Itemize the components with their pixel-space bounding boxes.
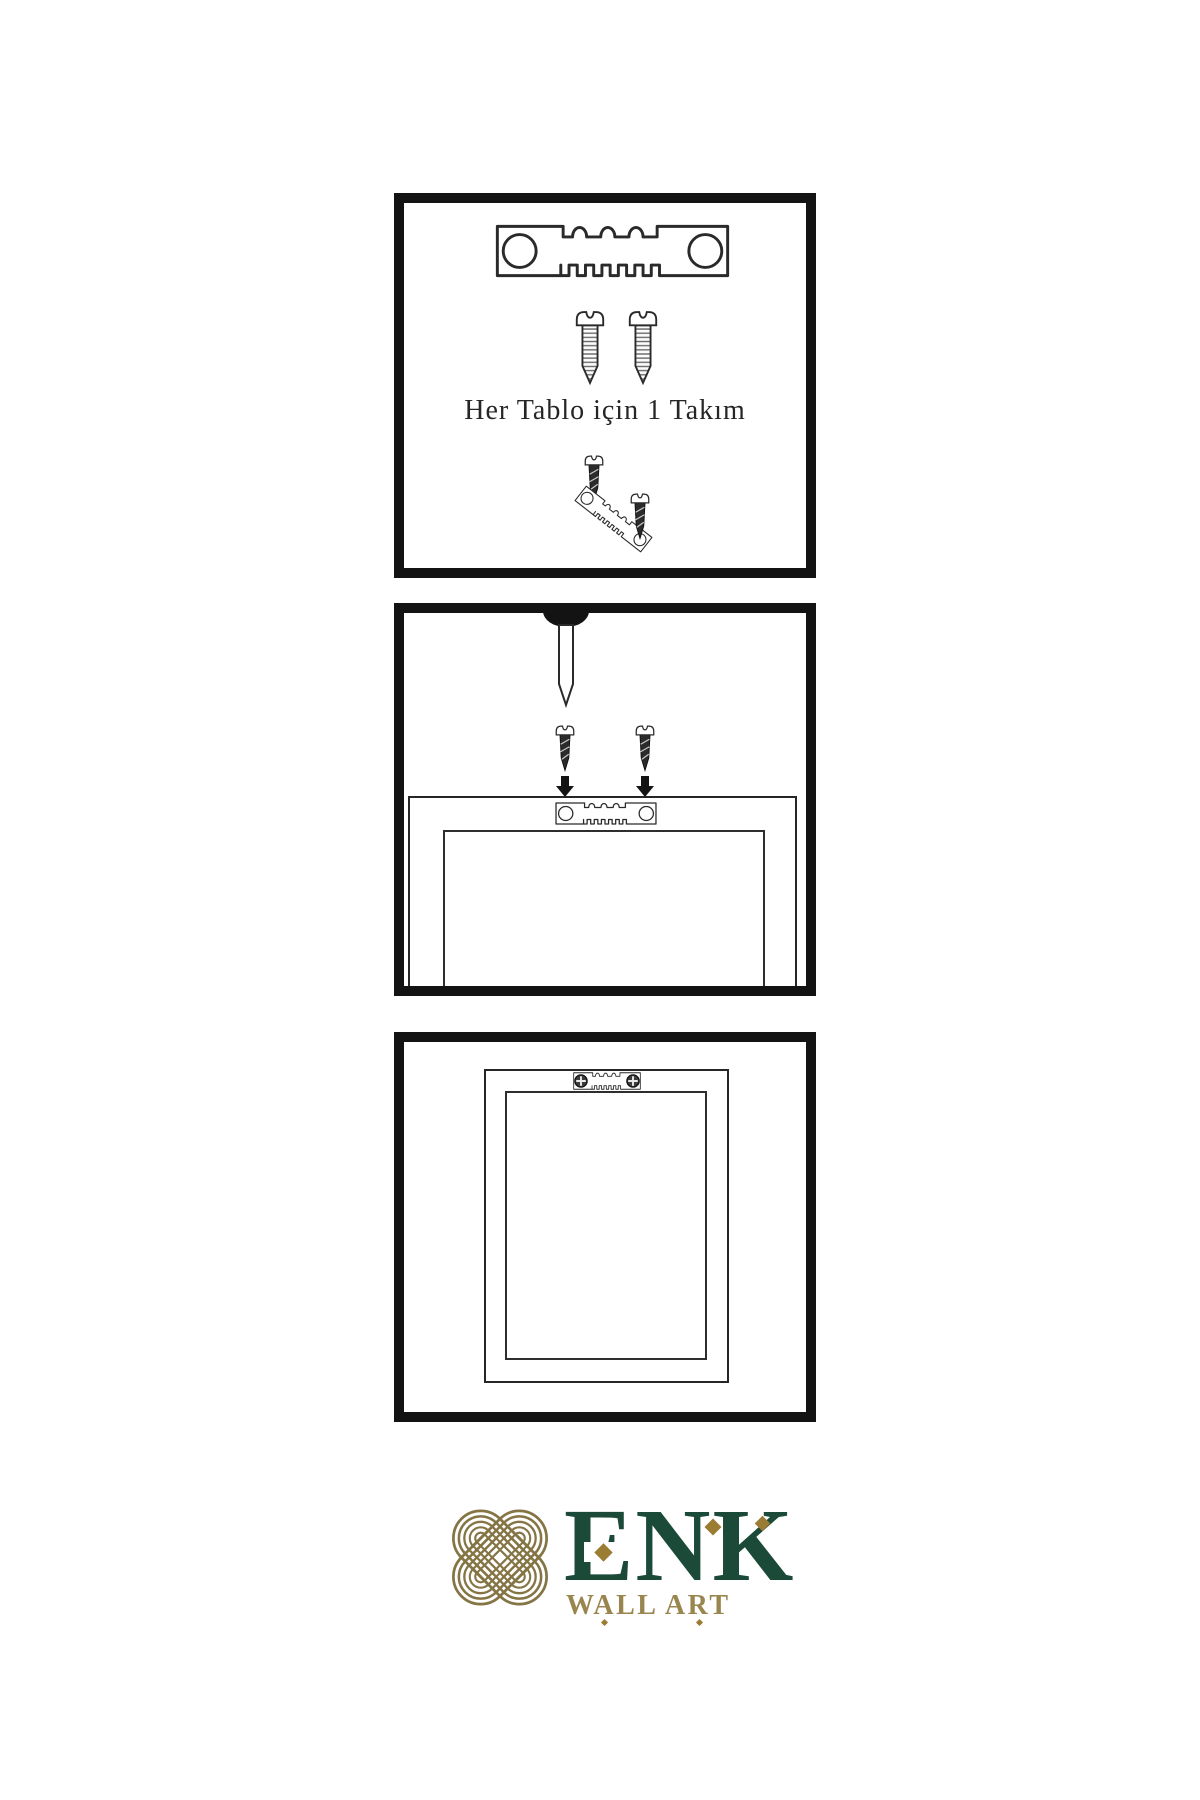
arrow-down-icon	[555, 776, 575, 798]
interlaced-knot-icon	[437, 1492, 563, 1623]
frame-back-inner-outline	[443, 830, 765, 996]
screw-icon	[626, 307, 660, 387]
brand-tagline: WALL ART	[566, 1592, 731, 1620]
screw-icon	[633, 723, 657, 773]
wall-nail-icon	[542, 610, 590, 718]
screw-icon	[553, 723, 577, 773]
sawtooth-hanger-icon	[495, 224, 730, 278]
sawtooth-hanger-icon	[555, 802, 657, 825]
frame-back-inner-outline	[505, 1091, 707, 1360]
panel-hung-frame	[394, 1032, 816, 1422]
screw-icon	[573, 307, 607, 387]
kit-caption: Her Tablo için 1 Takım	[404, 395, 806, 427]
phillips-screw-icon	[626, 1074, 640, 1088]
panel-hardware-kit: Her Tablo için 1 Takım	[394, 193, 816, 578]
panel-install-step	[394, 603, 816, 996]
phillips-screw-icon	[574, 1074, 588, 1088]
arrow-down-icon	[635, 776, 655, 798]
screw-icon	[628, 491, 652, 541]
instruction-sheet: Her Tablo için 1 Takım ENK	[0, 0, 1200, 1800]
